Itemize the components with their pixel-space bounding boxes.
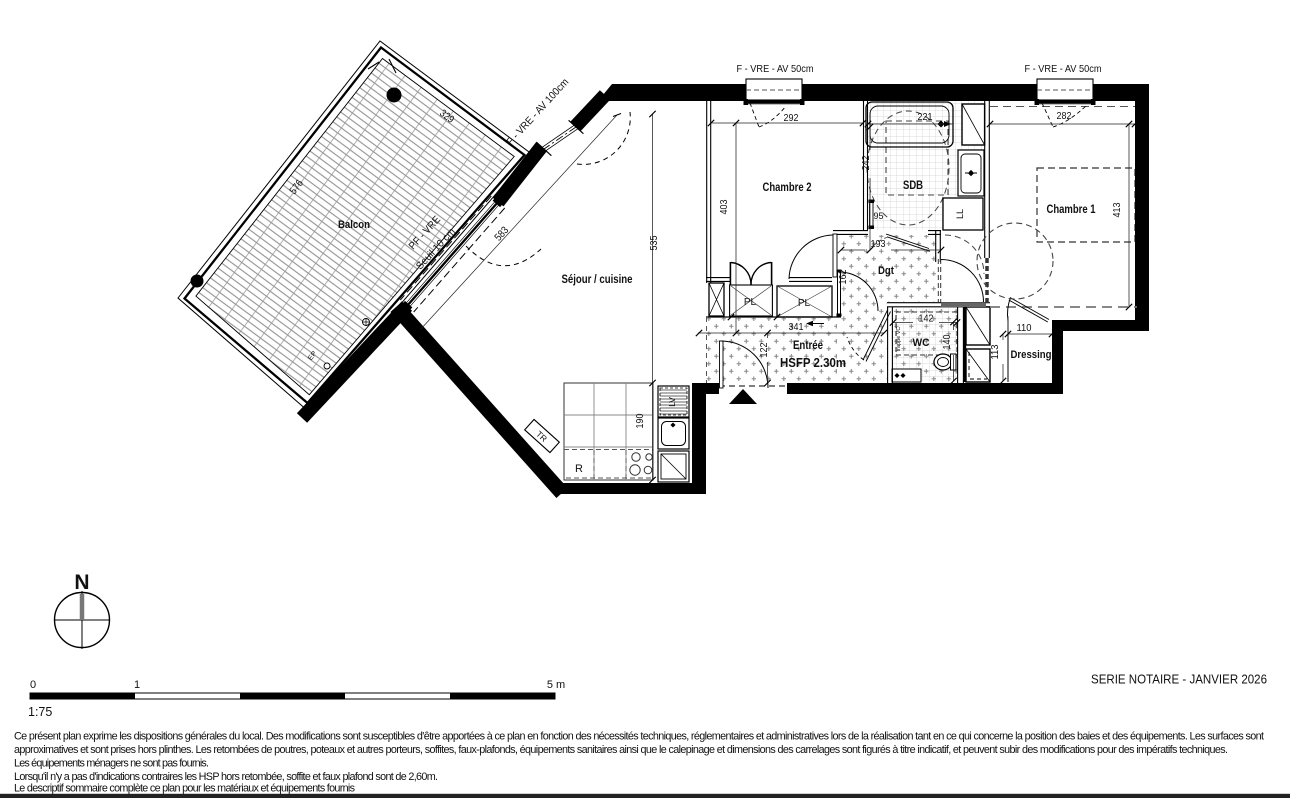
svg-text:122: 122 <box>758 342 770 357</box>
svg-text:Dressing: Dressing <box>1011 349 1052 361</box>
svg-text:113: 113 <box>989 344 1001 359</box>
svg-text:1:75: 1:75 <box>28 705 52 719</box>
svg-text:LV: LV <box>667 397 677 407</box>
svg-text:142: 142 <box>919 313 934 325</box>
svg-text:140: 140 <box>941 334 953 349</box>
svg-text:Séjour / cuisine: Séjour / cuisine <box>562 274 633 286</box>
svg-text:242: 242 <box>860 155 872 170</box>
svg-text:190: 190 <box>634 413 646 428</box>
svg-text:1: 1 <box>134 679 140 691</box>
svg-text:Lorsqu'il n'y a pas d'indicati: Lorsqu'il n'y a pas d'indications contra… <box>14 771 438 783</box>
svg-text:0: 0 <box>30 679 36 691</box>
svg-text:413: 413 <box>1111 202 1123 217</box>
svg-text:Les équipements ménagers ne so: Les équipements ménagers ne sont pas fou… <box>14 758 209 770</box>
svg-text:Chambre 1: Chambre 1 <box>1047 204 1096 216</box>
svg-text:LL: LL <box>955 209 965 219</box>
svg-text:193: 193 <box>871 238 886 250</box>
svg-text:HSFP 2.30m: HSFP 2.30m <box>780 356 846 370</box>
svg-text:292: 292 <box>784 112 799 124</box>
svg-text:Dgt: Dgt <box>878 265 894 277</box>
svg-text:282: 282 <box>1057 110 1072 122</box>
svg-text:PL: PL <box>798 298 811 309</box>
svg-text:Balcon: Balcon <box>338 219 370 231</box>
svg-text:F - VRE - AV 50cm: F - VRE - AV 50cm <box>1025 63 1102 75</box>
svg-text:Ce présent plan exprime les di: Ce présent plan exprime les dispositions… <box>14 731 1264 743</box>
svg-text:535: 535 <box>648 235 660 250</box>
svg-text:Chambre 2: Chambre 2 <box>763 182 812 194</box>
svg-text:Le descriptif sommaire complèt: Le descriptif sommaire complète ce plan … <box>14 783 356 795</box>
svg-text:221: 221 <box>918 111 933 123</box>
svg-text:WC: WC <box>913 337 930 349</box>
svg-text:110: 110 <box>1017 322 1032 334</box>
svg-text:R: R <box>575 463 583 475</box>
svg-text:162: 162 <box>837 269 849 284</box>
svg-text:trappe VC: trappe VC <box>896 327 902 352</box>
svg-text:95: 95 <box>874 211 884 221</box>
svg-text:5 m: 5 m <box>547 679 565 691</box>
svg-text:Entrée: Entrée <box>793 340 823 352</box>
svg-text:F - VRE - AV 50cm: F - VRE - AV 50cm <box>737 63 814 75</box>
svg-text:403: 403 <box>718 199 730 214</box>
svg-text:approximatives et sont prises: approximatives et sont prises hors plint… <box>14 744 1228 756</box>
svg-text:SERIE NOTAIRE - JANVIER 2026: SERIE NOTAIRE - JANVIER 2026 <box>1091 673 1267 687</box>
svg-text:PL: PL <box>744 297 757 308</box>
svg-text:SDB: SDB <box>903 180 923 192</box>
svg-text:341: 341 <box>789 321 804 333</box>
svg-text:N: N <box>74 571 89 594</box>
